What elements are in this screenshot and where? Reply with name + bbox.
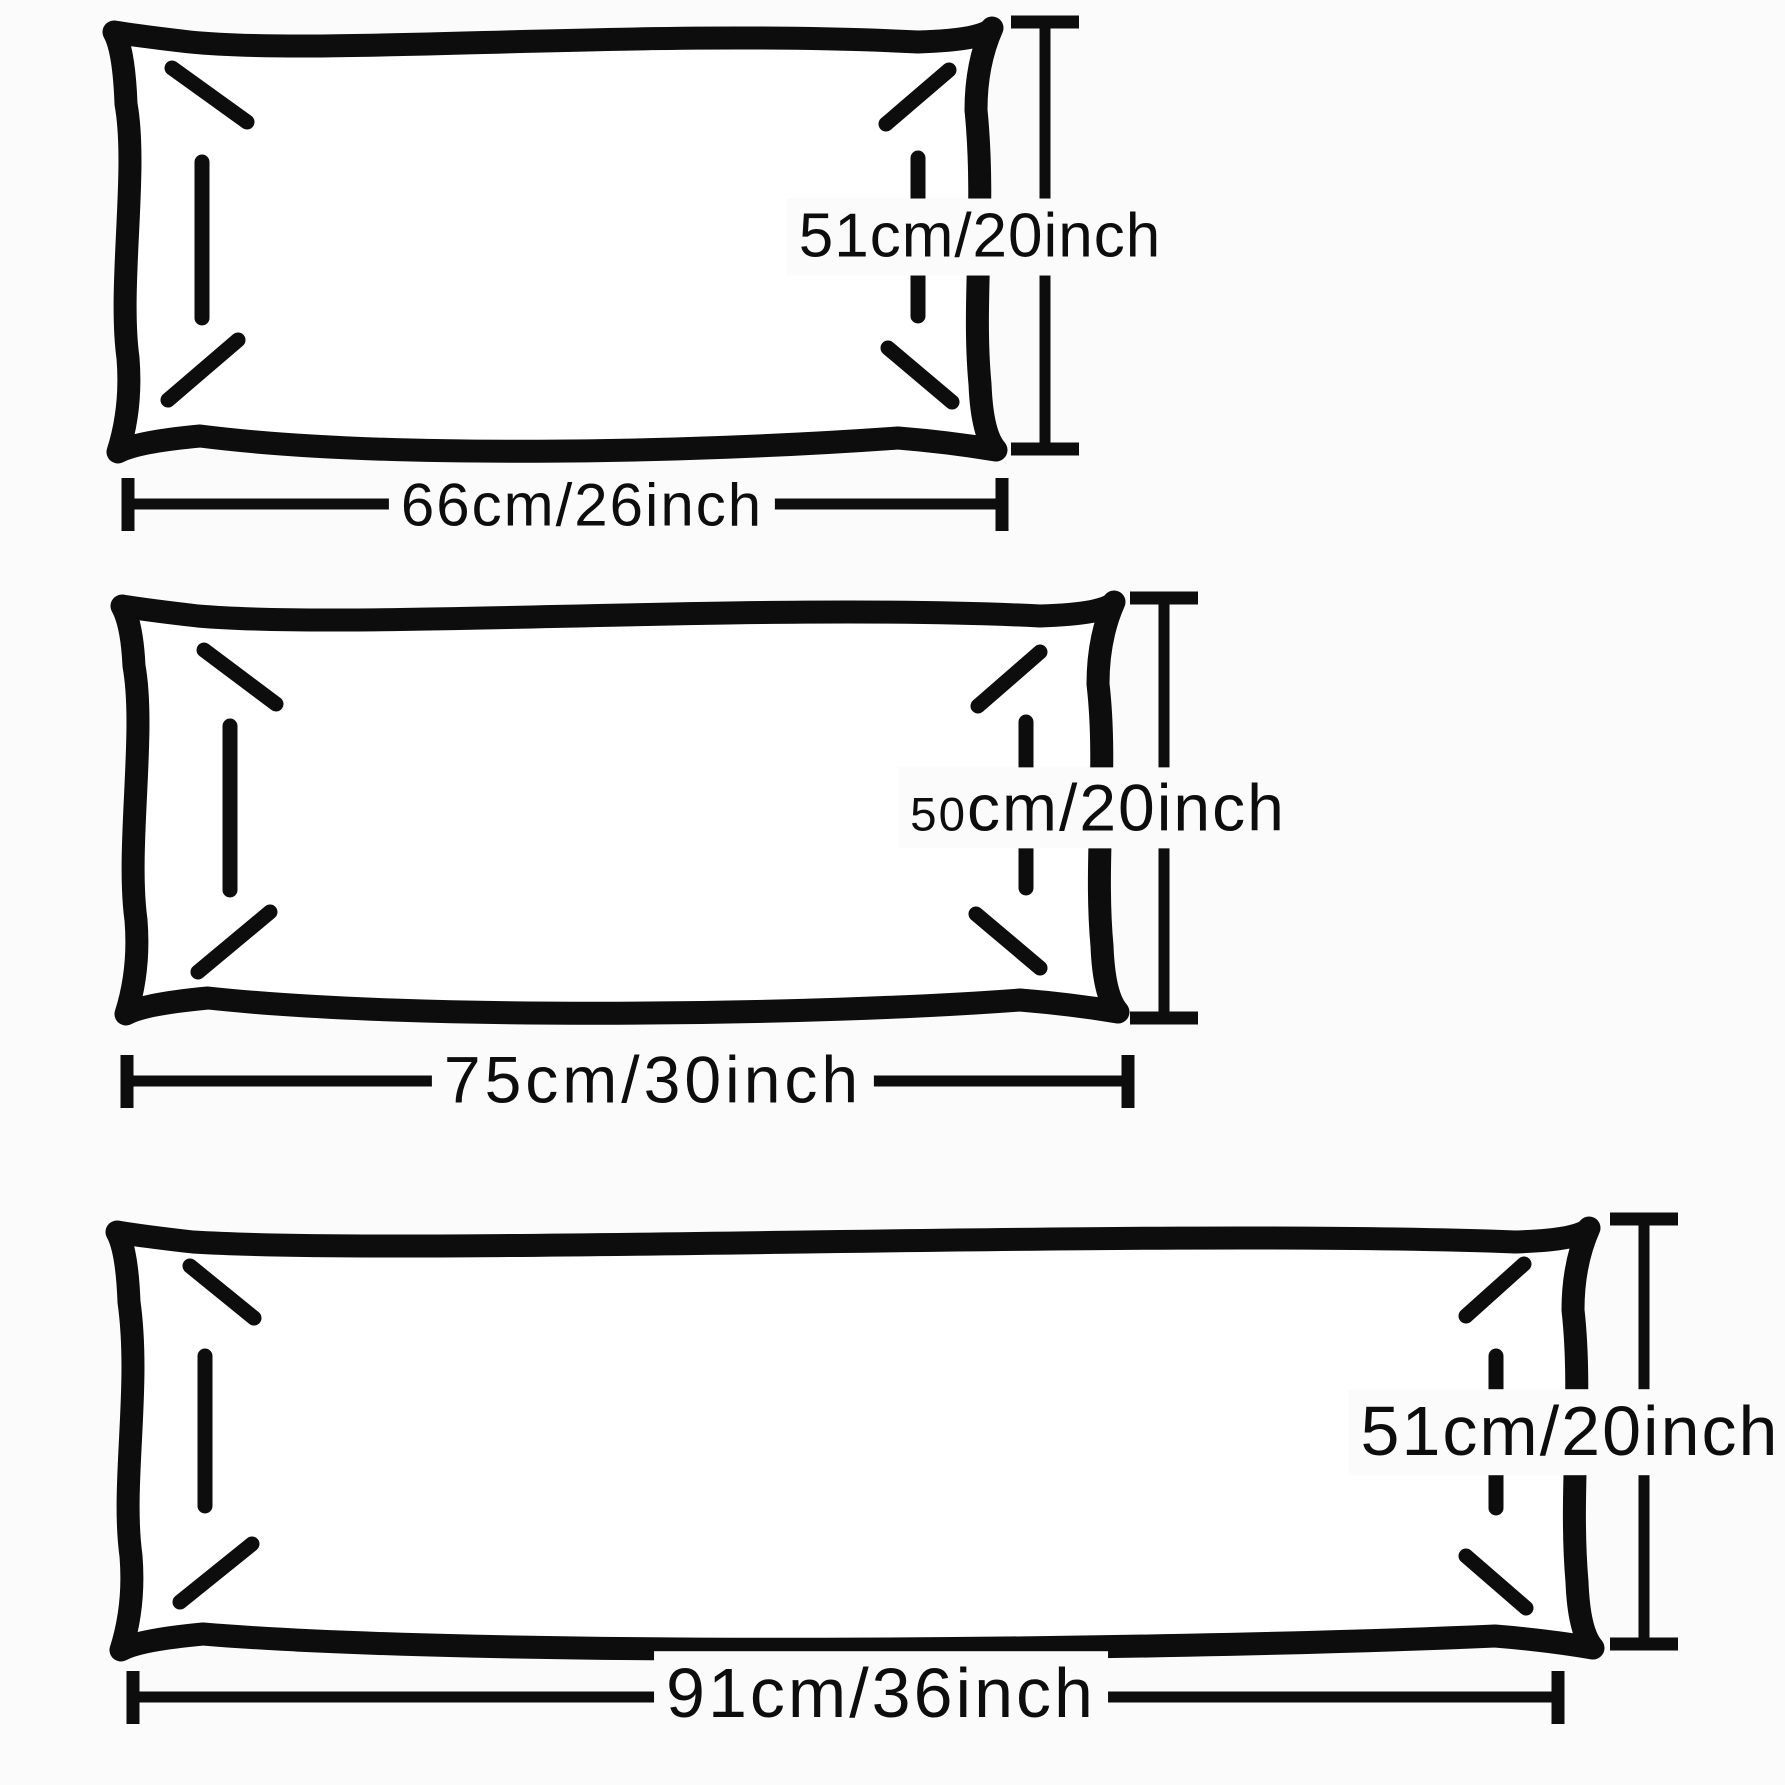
pillow-medium	[122, 598, 1198, 1108]
pillow-size-diagram: 51cm/20inch 66cm/26inch 50cm/20inch 75cm…	[0, 0, 1785, 1785]
pillow-small	[114, 22, 1079, 531]
pillow-small-width-label: 66cm/26inch	[389, 469, 775, 544]
height-value-suffix: cm/20inch	[967, 770, 1286, 844]
pillow-medium-height-label: 50cm/20inch	[898, 767, 1298, 848]
pillow-large-width-label: 91cm/36inch	[654, 1651, 1108, 1737]
height-value-prefix: 50	[910, 788, 967, 841]
pillow-small-height-label: 51cm/20inch	[787, 199, 1174, 276]
pillow-large-height-label: 51cm/20inch	[1349, 1389, 1785, 1475]
pillow-medium-width-label: 75cm/30inch	[432, 1039, 874, 1120]
